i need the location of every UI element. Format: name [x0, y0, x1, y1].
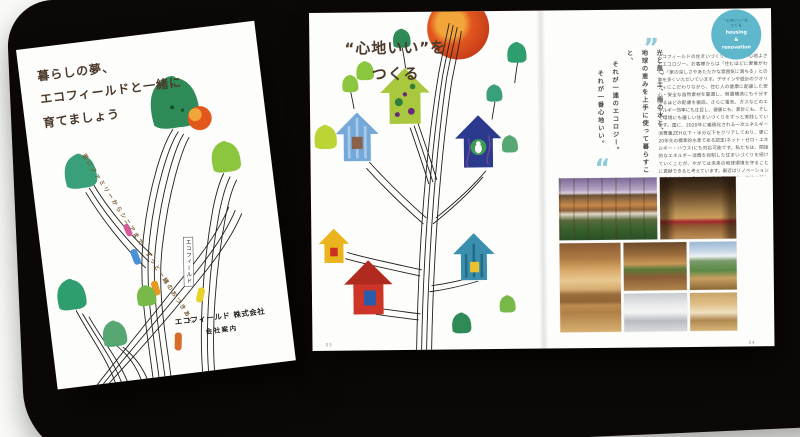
vertical-quote: 光と風、土、雨の水と、 地球の恵みを上手に使って暮らすこと、 それが一連のエコロ…: [592, 49, 659, 182]
photo-hallway-interior: [660, 177, 737, 240]
brochure-cover: 暮らしの夢、 エコフィールドと一緒に 育てましょう 若いファミリーからシニアまで…: [16, 21, 296, 390]
badge-en-line3: renovation: [722, 44, 751, 50]
photo-timber-frame: [690, 293, 737, 331]
brochure-mockup-scene: 暮らしの夢、 エコフィールドと一緒に 育てましょう 若いファミリーからシニアまで…: [0, 0, 800, 437]
vertical-quote-col4: それが一番心地いい。: [593, 70, 609, 182]
photo-dining-interior: [559, 243, 621, 333]
page-number-left: 03: [325, 343, 332, 348]
badge-en-line2: &: [734, 37, 738, 43]
housing-renovation-badge: “心地いい”を つくる housing & renovation: [711, 9, 762, 60]
badge-en-line1: housing: [726, 30, 747, 36]
badge-jp-line2: つくる: [730, 23, 742, 28]
brochure-spread: “心地いい”を つくる ” “ 光と風、土、雨の水と、 地球の恵みを上手に使って…: [309, 8, 775, 351]
photo-kitchen-interior: [623, 242, 686, 291]
photo-foundation-work: [624, 293, 687, 332]
page-title: “心地いい”を つくる: [339, 36, 452, 88]
photo-construction-site: [689, 242, 737, 290]
vertical-quote-col2: 地球の恵みを上手に使って暮らすこと、: [622, 49, 653, 181]
page-title-line1: “心地いい”を: [339, 36, 451, 63]
photo-house-exterior: [559, 177, 658, 240]
vertical-quote-col3: それが一連のエコロジー。: [607, 61, 623, 182]
page-title-line2: つくる: [340, 61, 452, 88]
body-text: エコフィールドの住まいづくりの基本は、心地よさとエコロジー。お客様からは「住むほ…: [657, 52, 768, 177]
page-number-right: 04: [748, 340, 755, 345]
body-text-block: エコフィールドの住まいづくりの基本は、心地よさとエコロジー。お客様からは「住むほ…: [657, 52, 768, 177]
trunk-label: エコフィールド: [183, 237, 194, 287]
